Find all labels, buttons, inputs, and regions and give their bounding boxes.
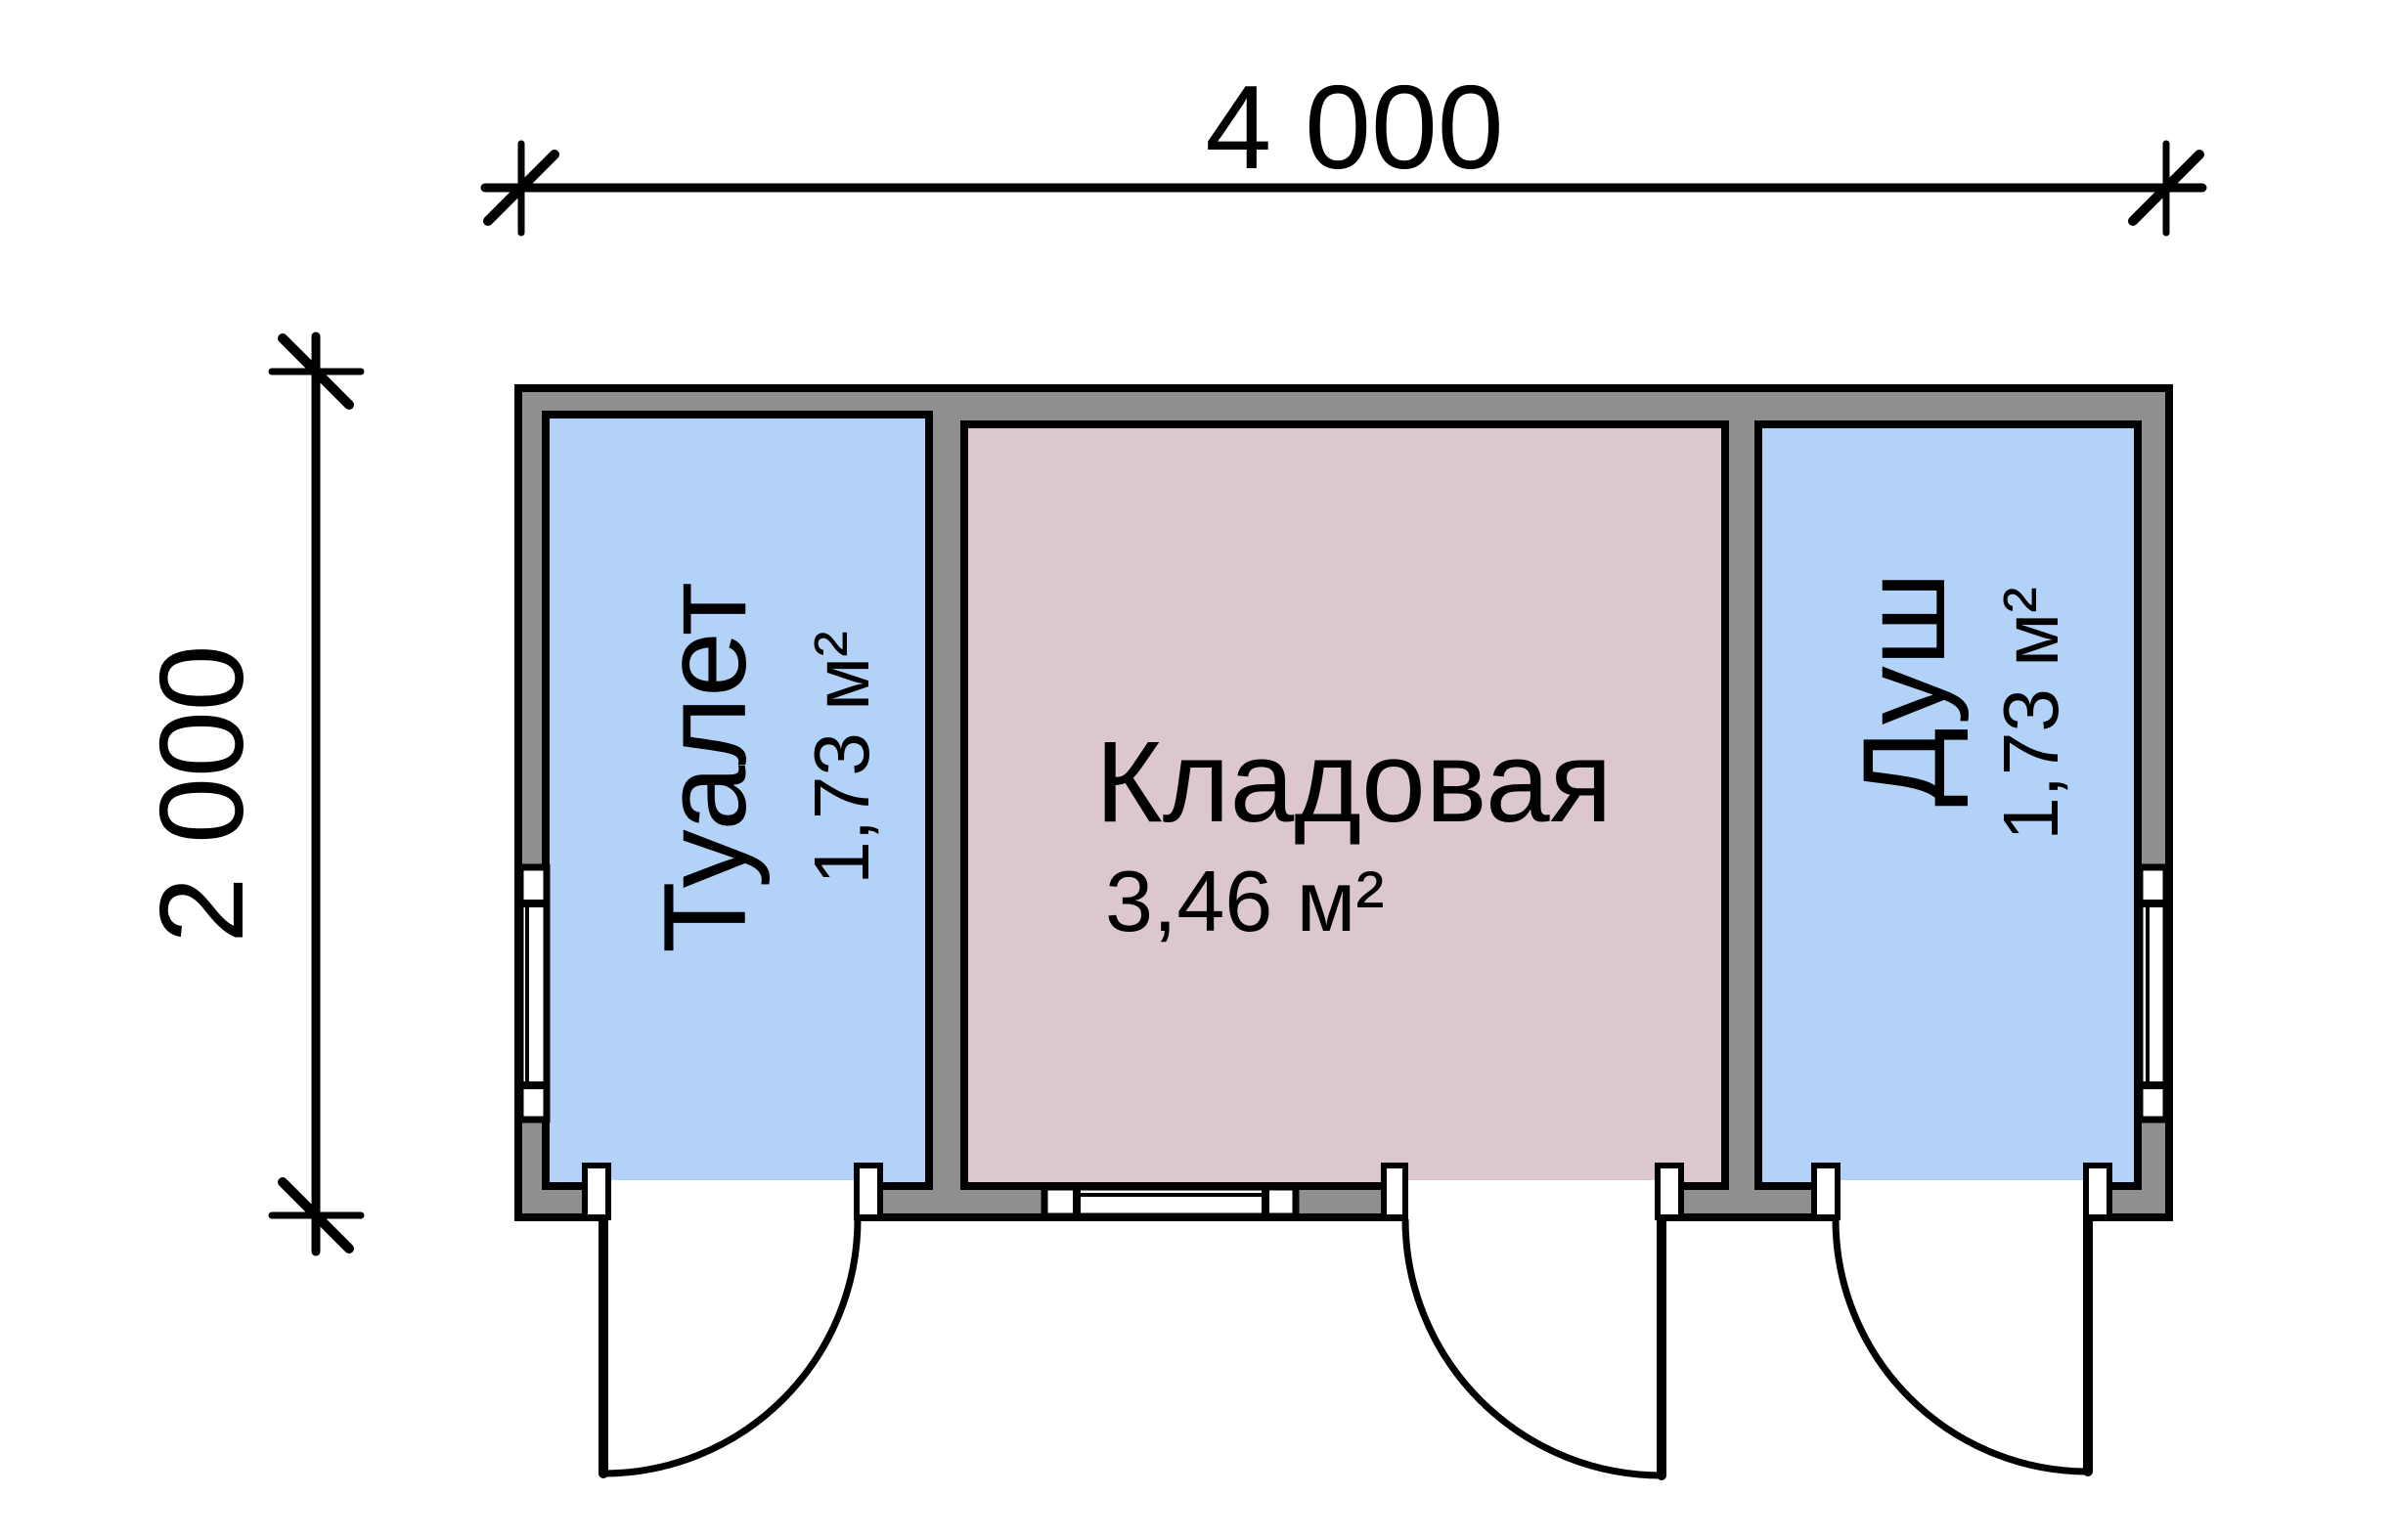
- dimension-left: 2 000: [135, 336, 361, 1252]
- door-opening-toilet: [608, 1180, 857, 1234]
- room-name-toilet: Туалет: [640, 582, 771, 953]
- room-area-storage: 3,46 м²: [1105, 853, 1385, 949]
- window-left-wall: [520, 867, 547, 1120]
- door-swing-storage: [1405, 1219, 1662, 1475]
- door-jamb-shower-right: [2086, 1166, 2109, 1217]
- door-swing-shower: [1836, 1219, 2088, 1472]
- door-jamb-storage-right: [1658, 1166, 1681, 1217]
- room-name-shower: Душ: [1839, 572, 1970, 807]
- door-jamb-storage-left: [1384, 1166, 1405, 1217]
- window-right-wall: [2140, 867, 2166, 1120]
- window-bottom-wall: [1044, 1187, 1296, 1216]
- door-swing-toilet: [603, 1219, 858, 1474]
- door-storage: [1405, 1219, 1662, 1475]
- room-area-toilet: 1,73 м²: [798, 631, 885, 885]
- door-opening-shower: [1838, 1180, 2086, 1234]
- room-area-shower: 1,73 м²: [1987, 587, 2074, 841]
- dimension-height-label: 2 000: [135, 644, 268, 943]
- door-jamb-toilet-left: [585, 1166, 608, 1217]
- door-shower: [1836, 1219, 2088, 1472]
- dimension-top: 4 000: [485, 61, 2202, 233]
- door-toilet: [603, 1219, 858, 1474]
- dimension-width-label: 4 000: [1205, 61, 1503, 194]
- floor-plan-drawing: 4 000 2 000: [0, 0, 2395, 1540]
- window-bottom-frame: [1044, 1187, 1296, 1216]
- door-opening-storage: [1405, 1180, 1658, 1234]
- door-jamb-toilet-right: [857, 1166, 880, 1217]
- floor-plan-canvas: 4 000 2 000: [0, 0, 2395, 1540]
- door-jamb-shower-left: [1814, 1166, 1838, 1217]
- room-name-storage: Кладовая: [1095, 718, 1613, 847]
